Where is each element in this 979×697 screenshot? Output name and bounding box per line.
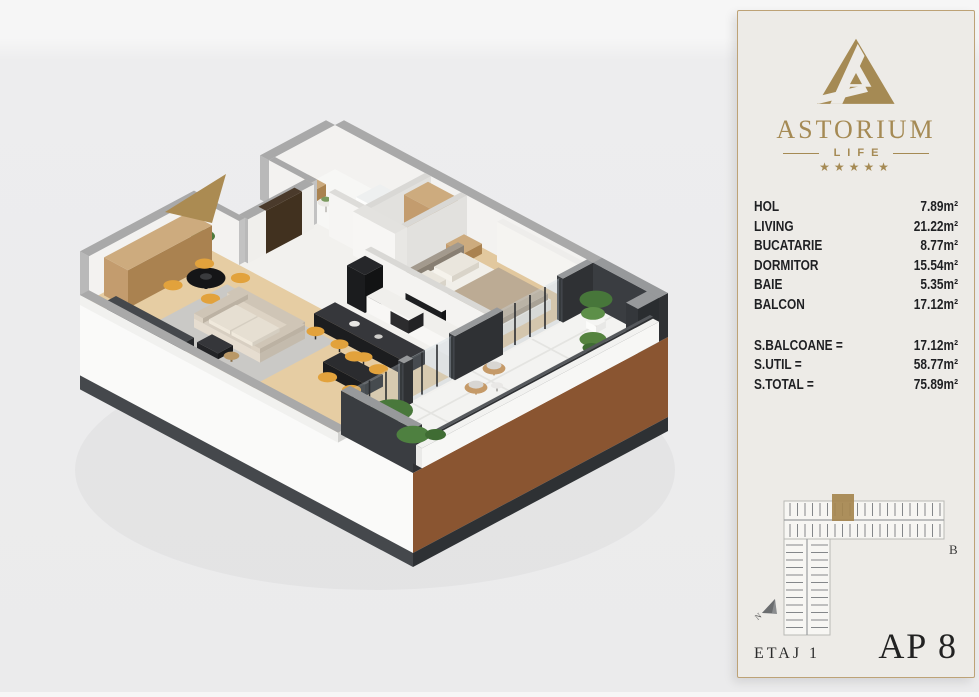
parapet-rail	[413, 441, 416, 465]
brand-subtitle-row: LIFE	[738, 146, 974, 160]
area-row-label: BAIE	[754, 276, 782, 296]
room-areas-rows: HOL 7.89m² LIVING 21.22m² BUCATARIE 8.77…	[754, 198, 958, 316]
area-row-label: BALCON	[754, 296, 805, 316]
wall-balcony-ne	[659, 293, 668, 342]
side-table	[224, 352, 240, 360]
area-row-value: 5.35m²	[920, 276, 958, 296]
rule-right	[893, 153, 929, 154]
area-row-label: S.UTIL =	[754, 356, 802, 376]
five-stars-icon: ★★★★★	[738, 160, 974, 176]
area-row-value: 58.77m²	[914, 356, 958, 376]
info-panel: ASTORIUM LIFE ★★★★★ HOL 7.89m² LIVING 21…	[737, 10, 975, 678]
area-row-label: S.TOTAL =	[754, 376, 814, 396]
room-areas-list: HOL 7.89m² LIVING 21.22m² BUCATARIE 8.77…	[754, 198, 958, 316]
wall-dark-pillar	[404, 359, 413, 408]
dining-chair	[195, 258, 214, 268]
panel-footer: ETAJ 1 AP 8	[754, 625, 958, 667]
area-row: S.UTIL = 58.77m²	[754, 356, 958, 376]
area-row-value: 7.89m²	[920, 198, 958, 218]
rule-left	[783, 153, 819, 154]
wall-alcove-b	[239, 218, 245, 265]
building-label: B	[949, 542, 958, 557]
bar-stool	[307, 327, 325, 337]
compass-letter: N	[753, 611, 763, 622]
area-row: BUCATARIE 8.77m²	[754, 237, 958, 257]
balcony-plant	[580, 291, 613, 309]
area-row-value: 17.12m²	[914, 337, 958, 357]
floor-plan-stage	[0, 0, 737, 692]
balcony-table	[491, 382, 503, 388]
brand-logo-icon	[738, 37, 974, 109]
dining-chair	[163, 280, 182, 290]
floor-plan-svg	[0, 0, 737, 692]
area-row: BALCON 17.12m²	[754, 296, 958, 316]
bar-stool	[331, 339, 349, 349]
parapet	[416, 445, 422, 468]
area-row-value: 17.12m²	[914, 296, 958, 316]
area-row: BAIE 5.35m²	[754, 276, 958, 296]
area-row-label: HOL	[754, 198, 779, 218]
floor-label: ETAJ 1	[754, 645, 820, 663]
area-row-value: 21.22m²	[914, 218, 958, 238]
area-row-label: DORMITOR	[754, 257, 819, 277]
area-row-value: 8.77m²	[920, 237, 958, 257]
area-row: DORMITOR 15.54m²	[754, 257, 958, 277]
area-row: S.BALCOANE = 17.12m²	[754, 337, 958, 357]
locator-highlighted-unit	[832, 494, 854, 521]
area-row: HOL 7.89m²	[754, 198, 958, 218]
nook-chair	[318, 372, 337, 382]
nook-chair	[345, 351, 364, 361]
area-row: S.TOTAL = 75.89m²	[754, 376, 958, 396]
area-row-label: BUCATARIE	[754, 237, 822, 257]
page: { "background": "#ededee", "panel": { "b…	[0, 0, 979, 692]
overhang-plant	[397, 426, 430, 444]
dining-chair	[231, 273, 250, 283]
area-row-label: S.BALCOANE =	[754, 337, 843, 357]
brand-name: ASTORIUM	[738, 115, 974, 145]
brand-subtitle: LIFE	[827, 147, 886, 159]
area-row-value: 75.89m²	[914, 376, 958, 396]
apartment-label: AP 8	[878, 625, 958, 667]
area-row-value: 15.54m²	[914, 257, 958, 277]
wall-nw-upper	[260, 155, 269, 204]
totals-rows: S.BALCOANE = 17.12m² S.UTIL = 58.77m² S.…	[754, 337, 958, 396]
area-row-label: LIVING	[754, 218, 794, 238]
area-row: LIVING 21.22m²	[754, 218, 958, 238]
balcony-plant	[581, 307, 605, 320]
totals-list: S.BALCOANE = 17.12m² S.UTIL = 58.77m² S.…	[754, 337, 958, 396]
overhang-plant	[425, 429, 446, 440]
